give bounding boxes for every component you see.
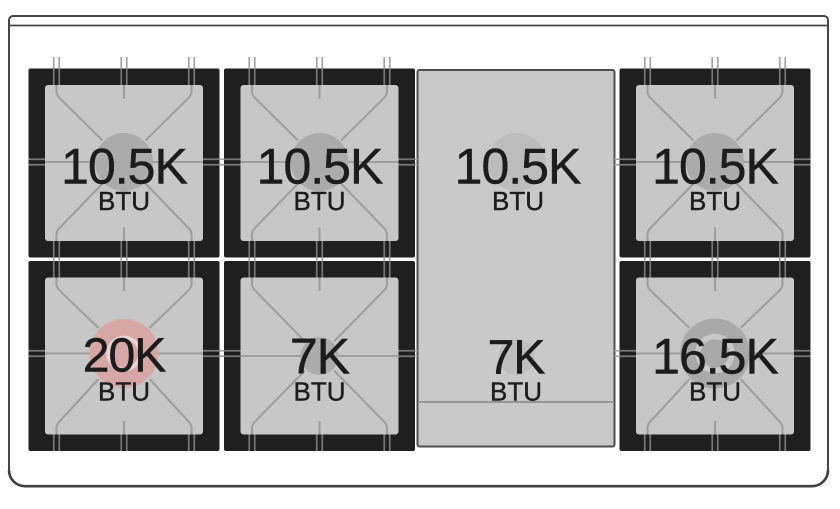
svg-text:BTU: BTU (689, 186, 741, 216)
svg-text:BTU: BTU (492, 186, 544, 216)
svg-text:BTU: BTU (98, 376, 150, 406)
svg-text:BTU: BTU (294, 376, 346, 406)
svg-text:BTU: BTU (98, 186, 150, 216)
svg-text:BTU: BTU (490, 376, 542, 406)
svg-text:20K: 20K (83, 330, 166, 383)
svg-text:BTU: BTU (689, 376, 741, 406)
svg-text:BTU: BTU (294, 186, 346, 216)
